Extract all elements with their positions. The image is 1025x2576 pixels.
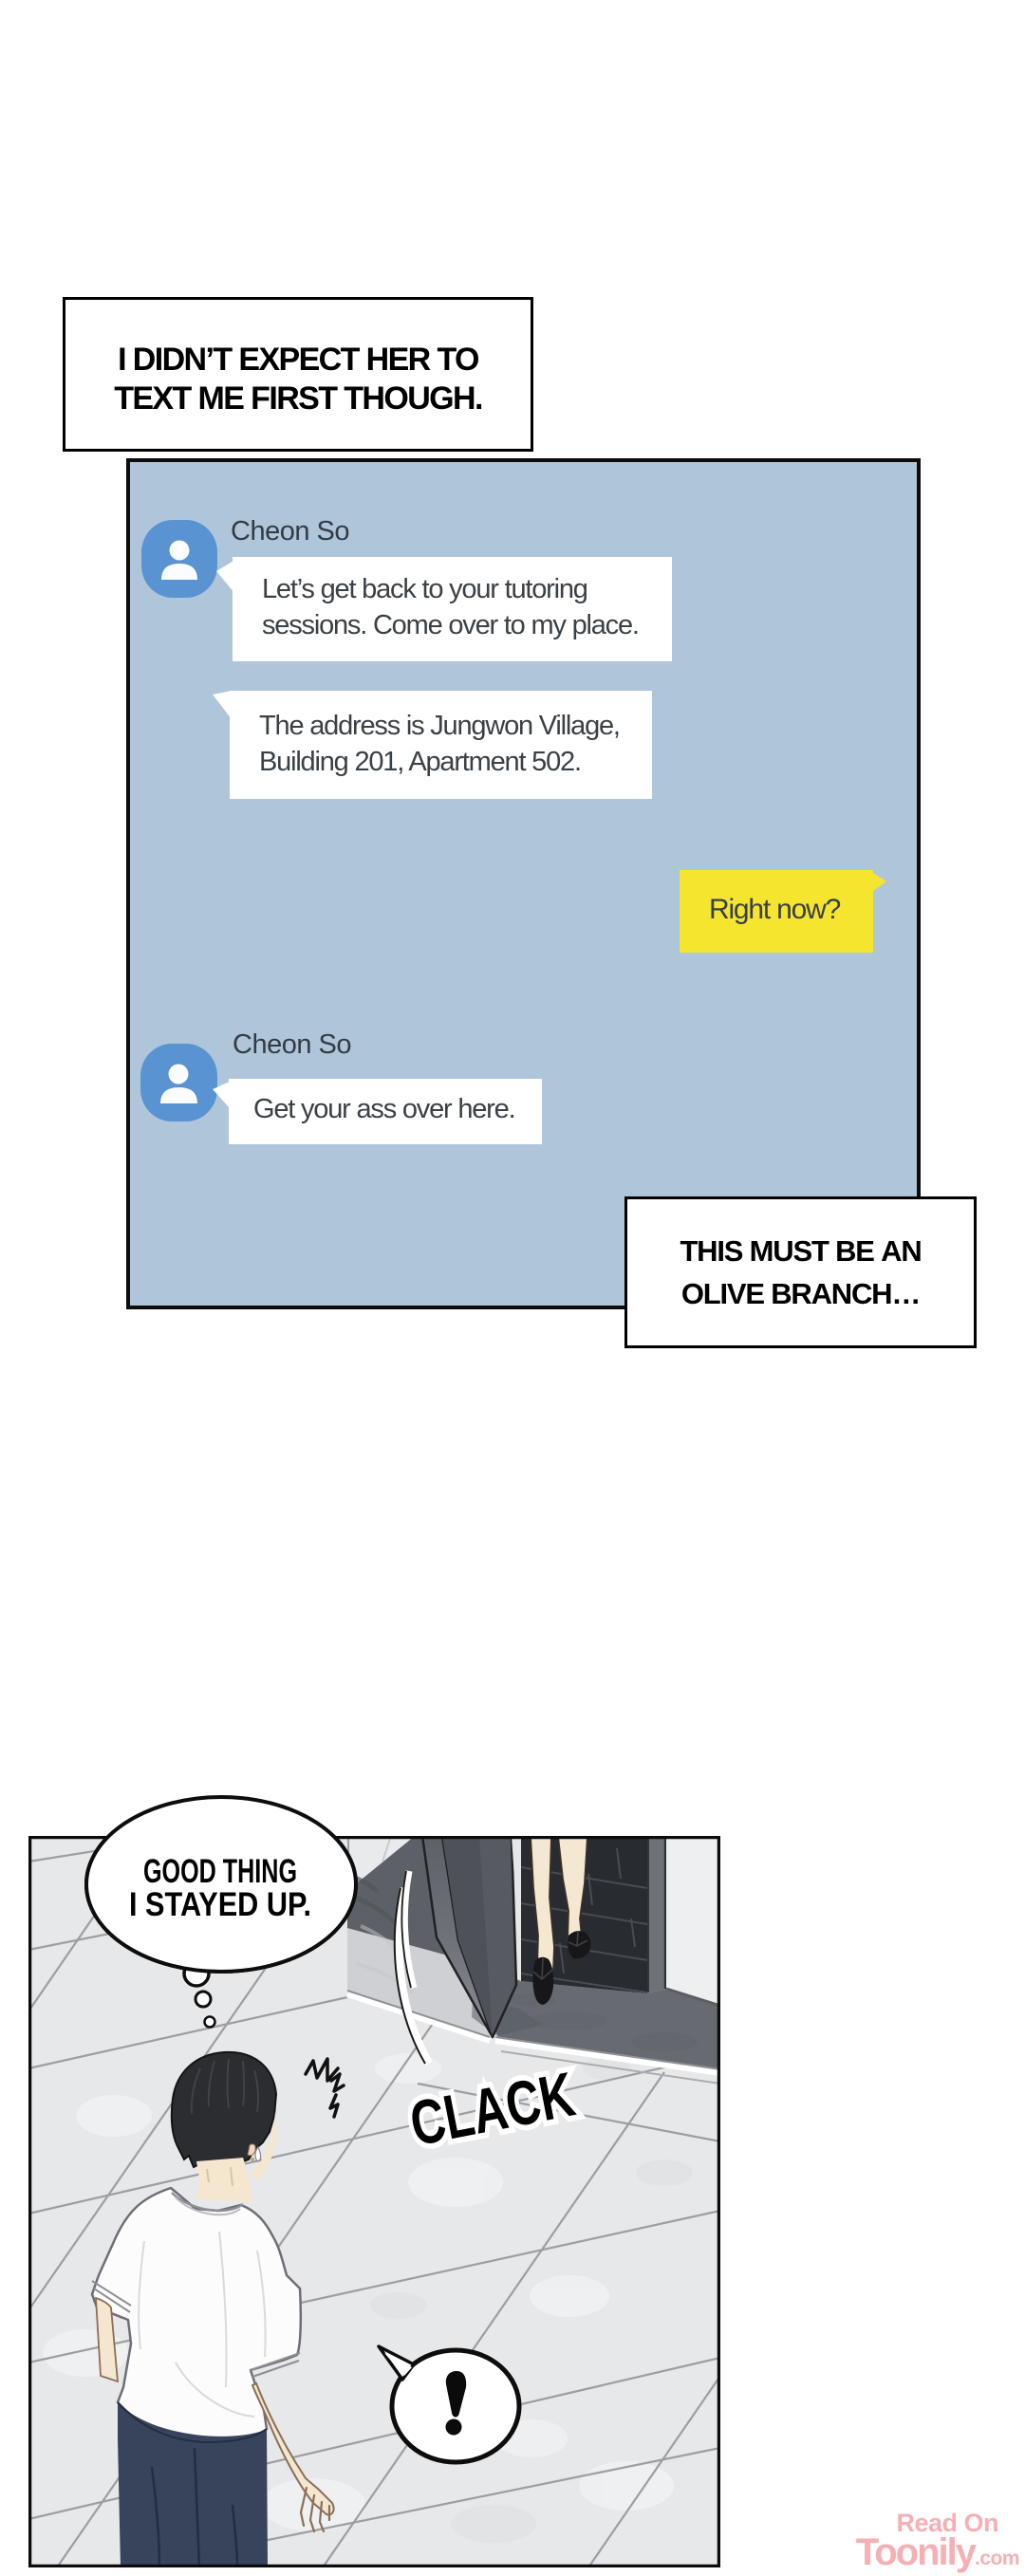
svg-text:I STAYED UP.: I STAYED UP.	[129, 1886, 311, 1923]
svg-text:GOOD THING: GOOD THING	[143, 1853, 297, 1890]
